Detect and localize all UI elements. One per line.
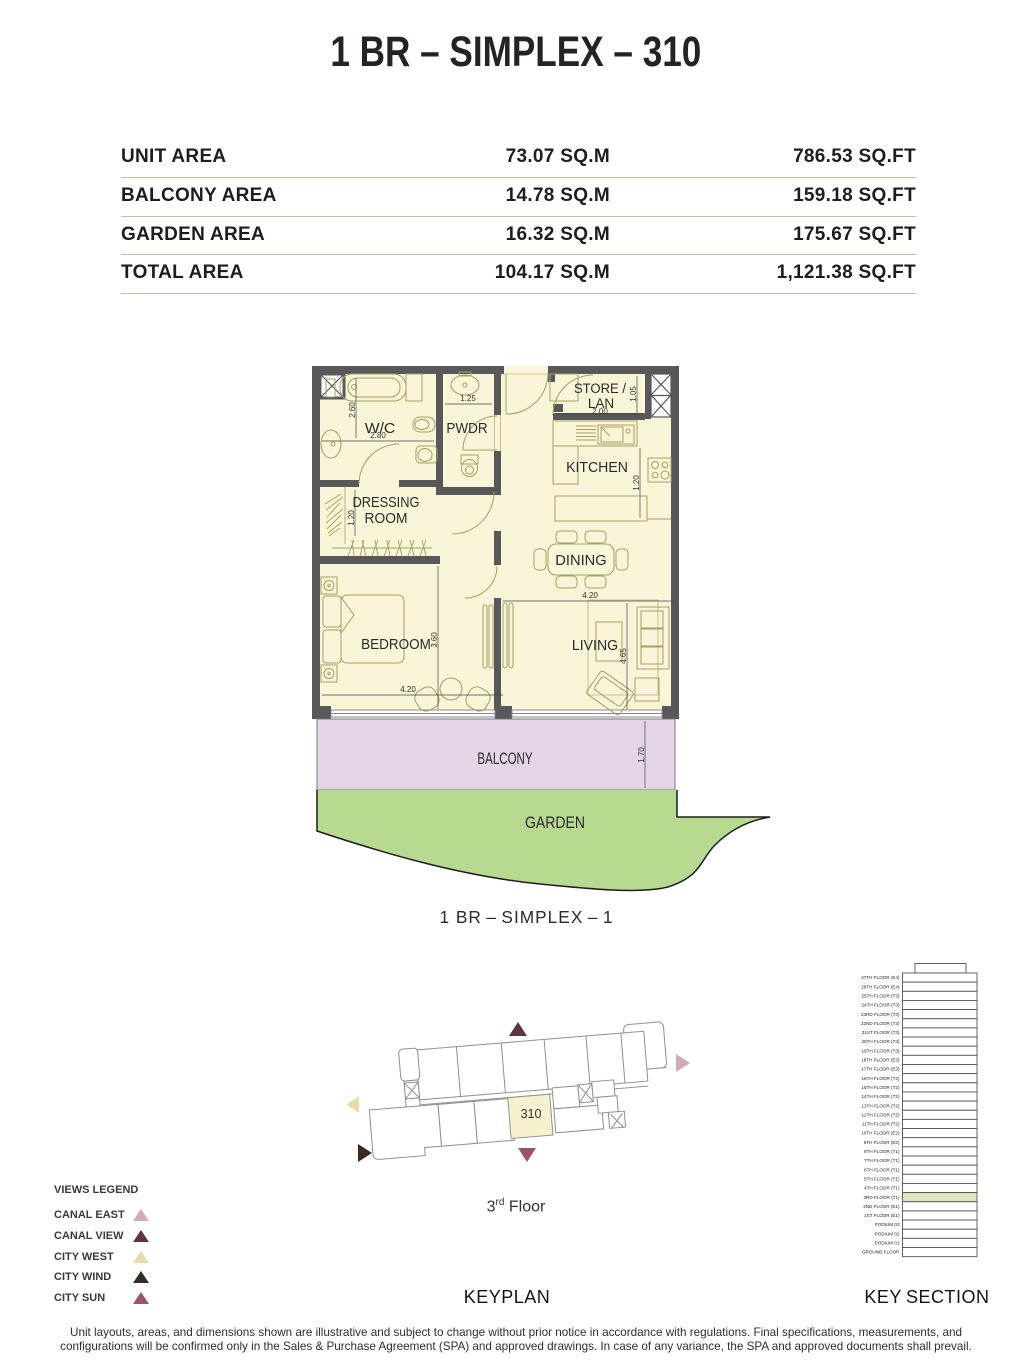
svg-text:24TH FLOOR (T3): 24TH FLOOR (T3)	[861, 1003, 900, 1008]
svg-text:310: 310	[521, 1107, 542, 1121]
svg-text:1.70: 1.70	[637, 747, 646, 763]
svg-text:5TH FLOOR (T1): 5TH FLOOR (T1)	[864, 1176, 900, 1181]
svg-text:KITCHEN: KITCHEN	[566, 460, 628, 476]
svg-text:16TH FLOOR (T2): 16TH FLOOR (T2)	[861, 1076, 900, 1081]
svg-text:DRESSING: DRESSING	[353, 493, 420, 510]
svg-text:10TH FLOOR (E2): 10TH FLOOR (E2)	[861, 1131, 900, 1136]
svg-text:1.20: 1.20	[632, 475, 641, 491]
svg-text:14TH FLOOR (T2): 14TH FLOOR (T2)	[861, 1094, 900, 1099]
svg-text:STORE /: STORE /	[574, 381, 626, 396]
svg-text:PODIUM 03: PODIUM 03	[875, 1222, 900, 1227]
svg-text:11TH FLOOR (T2): 11TH FLOOR (T2)	[862, 1122, 900, 1127]
svg-text:2.60: 2.60	[348, 402, 357, 418]
svg-text:6TH FLOOR (T1): 6TH FLOOR (T1)	[864, 1167, 900, 1172]
svg-text:PWDR: PWDR	[446, 420, 487, 437]
svg-text:4.20: 4.20	[582, 591, 598, 600]
svg-text:4.20: 4.20	[400, 685, 416, 694]
svg-text:23RD FLOOR (T3): 23RD FLOOR (T3)	[861, 1012, 900, 1017]
svg-text:27TH FLOOR (E4): 27TH FLOOR (E4)	[861, 975, 900, 980]
svg-text:GROUND FLOOR: GROUND FLOOR	[862, 1250, 900, 1255]
svg-text:1.25: 1.25	[460, 394, 476, 403]
svg-text:22ND FLOOR (T3): 22ND FLOOR (T3)	[861, 1021, 900, 1026]
svg-text:2ND FLOOR (E1): 2ND FLOOR (E1)	[863, 1204, 900, 1209]
svg-text:1ST FLOOR (E1): 1ST FLOOR (E1)	[864, 1213, 900, 1218]
svg-text:7TH FLOOR (T1): 7TH FLOOR (T1)	[864, 1158, 900, 1163]
svg-text:21ST FLOOR (T3): 21ST FLOOR (T3)	[862, 1030, 900, 1035]
svg-text:15TH FLOOR (T2): 15TH FLOOR (T2)	[861, 1085, 900, 1090]
svg-text:18TH FLOOR (E3): 18TH FLOOR (E3)	[861, 1058, 900, 1063]
svg-text:12TH FLOOR (T2): 12TH FLOOR (T2)	[861, 1112, 900, 1117]
svg-text:26TH FLOOR (E4): 26TH FLOOR (E4)	[861, 984, 900, 989]
svg-text:9TH FLOOR (E2): 9TH FLOOR (E2)	[864, 1140, 900, 1145]
svg-text:25TH FLOOR (T3): 25TH FLOOR (T3)	[861, 993, 900, 998]
svg-text:BALCONY: BALCONY	[477, 750, 533, 769]
svg-text:PODIUM 01: PODIUM 01	[875, 1241, 900, 1246]
svg-text:ROOM: ROOM	[365, 511, 408, 528]
svg-text:8TH FLOOR (T1): 8TH FLOOR (T1)	[864, 1149, 900, 1154]
svg-text:GARDEN: GARDEN	[525, 814, 585, 832]
svg-text:3.60: 3.60	[430, 632, 439, 648]
svg-text:1.05: 1.05	[629, 386, 638, 402]
svg-text:PODIUM 02: PODIUM 02	[875, 1231, 900, 1236]
svg-text:LAN: LAN	[588, 396, 614, 411]
svg-text:BEDROOM: BEDROOM	[361, 636, 431, 653]
svg-text:13TH FLOOR (T2): 13TH FLOOR (T2)	[861, 1103, 900, 1108]
svg-text:1.20: 1.20	[347, 510, 356, 526]
svg-text:4TH FLOOR (T1): 4TH FLOOR (T1)	[864, 1186, 900, 1191]
svg-text:3RD FLOOR (T1): 3RD FLOOR (T1)	[864, 1195, 900, 1200]
svg-text:DINING: DINING	[555, 553, 606, 569]
svg-text:17TH FLOOR (E3): 17TH FLOOR (E3)	[861, 1067, 900, 1072]
svg-text:W/C: W/C	[365, 420, 396, 437]
svg-text:4.65: 4.65	[619, 648, 628, 664]
svg-text:20TH FLOOR (T3): 20TH FLOOR (T3)	[861, 1039, 900, 1044]
svg-text:19TH FLOOR (T3): 19TH FLOOR (T3)	[861, 1048, 900, 1053]
svg-text:LIVING: LIVING	[572, 638, 618, 654]
